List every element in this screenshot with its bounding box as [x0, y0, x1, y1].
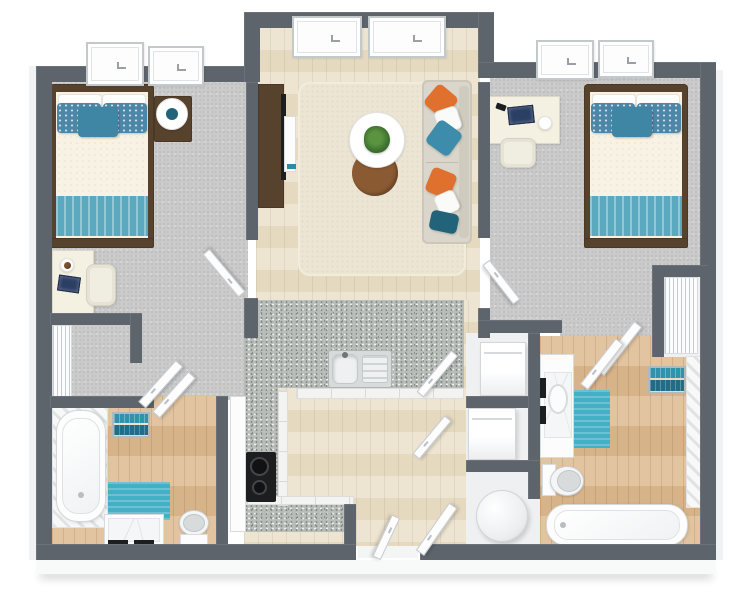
remote-item [287, 164, 296, 169]
wall-outer-bottom-right [420, 544, 716, 560]
closet-1-wire-shelf [52, 325, 72, 397]
towel-rack-2-towel-top [650, 368, 684, 378]
vanity-1-top [108, 518, 160, 542]
kitchen-counter-bottom-run [244, 504, 356, 532]
wall-laundry-divider-1 [466, 396, 528, 408]
vanity-2-sink [548, 384, 568, 414]
foundation-right [716, 70, 723, 560]
bathtub-1-basin [62, 418, 100, 514]
washer [480, 342, 526, 396]
linen-nook-wire-shelf [664, 277, 698, 354]
bed-1-footboard [50, 238, 154, 248]
bath-2-rug [574, 390, 610, 448]
towel-rack-1-towel-top [114, 414, 148, 423]
kitchen-sink-faucet [342, 352, 348, 358]
wall-bath-1-east [216, 396, 228, 544]
desk-2-chair [500, 138, 536, 168]
kitchen-sink-basin [332, 354, 358, 384]
desk-1-plate-center [64, 262, 71, 269]
desk-1-chair [86, 264, 116, 306]
window-bedroom-2-right [598, 40, 654, 78]
bed-1-center-pillow [78, 107, 118, 137]
desk-1-laptop [57, 275, 81, 294]
wall-laundry-bath-2 [528, 333, 540, 499]
bed-1-blanket [56, 196, 148, 236]
wall-outer-right [700, 62, 716, 560]
floor-plan [0, 0, 740, 592]
wall-bedroom-2-south [478, 320, 562, 333]
toilet-1-seat [183, 514, 205, 532]
cooktop-burner-front [252, 480, 267, 495]
desk-2-plate [538, 116, 552, 130]
kitchen-cabinet-face-east [278, 390, 288, 506]
bathtub-2-basin [554, 510, 680, 540]
window-living-left [292, 16, 362, 58]
wall-living-bedroom-2 [478, 82, 490, 238]
kitchen-sink-drainboard [362, 355, 388, 383]
kitchen-wall-stub [344, 504, 356, 546]
bathtub-1-drain [78, 492, 84, 498]
toilet-2-seat [557, 470, 581, 492]
wall-nook-west [652, 265, 664, 357]
wall-nook-north [652, 265, 708, 277]
water-heater [476, 490, 528, 542]
vanity-2-fixture-bottom [540, 406, 546, 424]
cooktop-burner-rear [250, 457, 269, 476]
window-bedroom-2-left [536, 40, 594, 80]
vanity-2-fixture-top [540, 378, 546, 398]
window-bedroom-1-left [86, 42, 144, 86]
foundation-bottom [36, 560, 716, 574]
coffee-table-plant [364, 126, 390, 153]
bed-2-center-pillow [612, 107, 652, 137]
towel-rack-1-towel-bottom [114, 425, 148, 435]
wall-closet-1-north [50, 313, 142, 325]
kitchen-cabinet-face-south [296, 388, 464, 399]
bed-2-footboard [584, 238, 688, 248]
kitchen-end-panel [230, 396, 246, 532]
wall-outer-top-bedroom-2 [478, 62, 716, 78]
bathtub-2-faucet [560, 522, 566, 528]
wall-laundry-divider-2 [466, 460, 540, 472]
wall-bedroom-1-living [246, 82, 258, 240]
lamp-1-center [166, 108, 178, 120]
wall-closet-1-east [130, 313, 142, 363]
foundation-left [29, 66, 36, 560]
towel-rack-2-towel-bottom [650, 380, 684, 391]
window-bedroom-1-right [148, 46, 204, 86]
wall-kitchen-northwest-stub [244, 298, 258, 338]
bed-2-blanket [590, 196, 682, 236]
desk-2-laptop [507, 105, 535, 126]
entry-threshold [358, 546, 418, 558]
window-living-right [368, 16, 446, 58]
wall-outer-bottom-left [36, 544, 356, 560]
dryer [468, 408, 516, 460]
